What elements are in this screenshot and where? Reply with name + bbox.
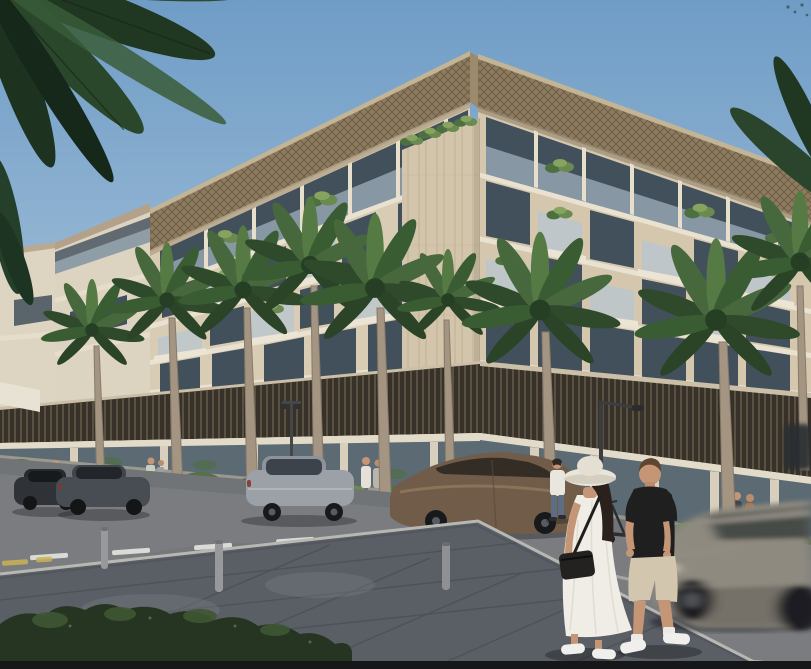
bollard-1 [101,527,108,569]
render-viewport [0,0,811,669]
bollard-3 [442,542,450,590]
black-handbag [558,550,595,580]
bollard-2 [215,540,223,592]
distant-dark-vehicle [784,424,811,470]
bottom-strip [0,661,811,669]
